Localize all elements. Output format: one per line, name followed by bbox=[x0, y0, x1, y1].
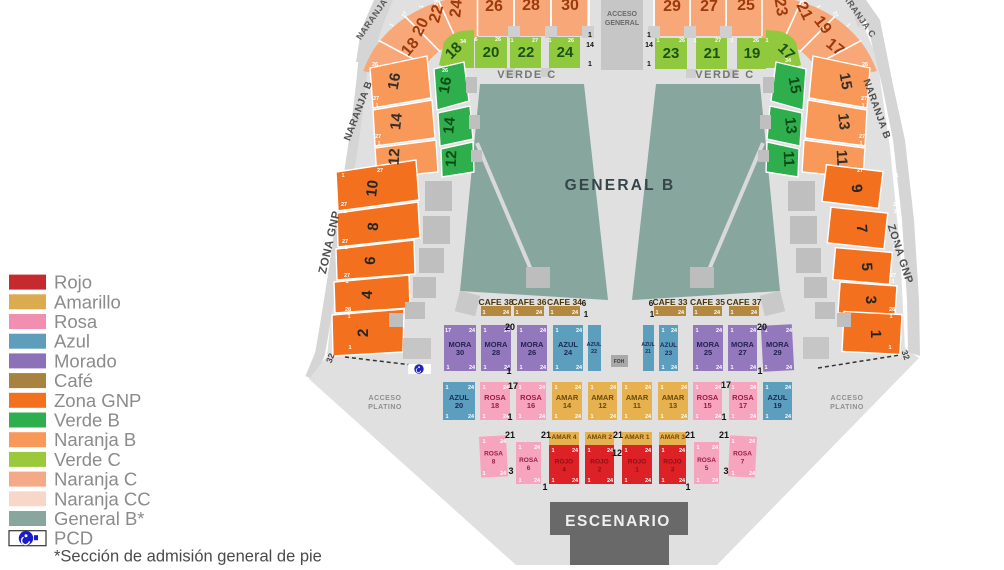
svg-text:1: 1 bbox=[693, 38, 696, 44]
svg-text:15: 15 bbox=[785, 76, 805, 95]
svg-text:34: 34 bbox=[460, 39, 467, 45]
svg-text:ROJO: ROJO bbox=[590, 459, 608, 466]
svg-text:24: 24 bbox=[645, 448, 652, 454]
svg-text:17: 17 bbox=[445, 328, 451, 334]
svg-text:1: 1 bbox=[889, 314, 892, 320]
svg-text:1: 1 bbox=[555, 328, 558, 334]
svg-text:24: 24 bbox=[610, 385, 617, 391]
svg-text:24: 24 bbox=[503, 310, 510, 316]
svg-text:6: 6 bbox=[362, 256, 380, 266]
svg-text:Verde B: Verde B bbox=[54, 410, 120, 431]
svg-text:1: 1 bbox=[590, 385, 593, 391]
svg-text:6: 6 bbox=[582, 299, 587, 308]
svg-text:ROSA: ROSA bbox=[484, 451, 503, 458]
svg-text:27: 27 bbox=[857, 168, 863, 174]
svg-text:24: 24 bbox=[749, 439, 756, 445]
svg-text:1: 1 bbox=[345, 279, 348, 285]
svg-text:1: 1 bbox=[518, 385, 521, 391]
svg-text:1: 1 bbox=[661, 478, 664, 484]
svg-text:1: 1 bbox=[892, 245, 895, 251]
svg-text:24: 24 bbox=[468, 385, 475, 391]
svg-text:27: 27 bbox=[377, 168, 383, 174]
svg-text:26: 26 bbox=[372, 62, 378, 68]
svg-text:24: 24 bbox=[540, 365, 547, 371]
svg-text:1: 1 bbox=[859, 141, 862, 147]
svg-text:14: 14 bbox=[387, 112, 406, 131]
svg-text:1: 1 bbox=[624, 448, 627, 454]
svg-text:Rojo: Rojo bbox=[54, 272, 92, 293]
svg-text:1: 1 bbox=[482, 385, 485, 391]
svg-text:1: 1 bbox=[555, 365, 558, 371]
svg-text:1: 1 bbox=[507, 412, 512, 422]
svg-text:ROJO: ROJO bbox=[628, 459, 646, 466]
svg-text:1: 1 bbox=[650, 310, 655, 319]
svg-text:27: 27 bbox=[700, 0, 718, 15]
svg-text:26: 26 bbox=[753, 38, 759, 44]
svg-text:24: 24 bbox=[572, 478, 579, 484]
svg-text:24: 24 bbox=[534, 478, 541, 484]
svg-text:21: 21 bbox=[505, 430, 515, 440]
svg-text:13: 13 bbox=[669, 401, 677, 410]
svg-text:24: 24 bbox=[572, 310, 579, 316]
svg-text:1: 1 bbox=[482, 310, 485, 316]
svg-text:1: 1 bbox=[731, 414, 734, 420]
svg-text:GENERAL: GENERAL bbox=[605, 20, 640, 27]
svg-text:14: 14 bbox=[563, 401, 572, 410]
svg-text:24: 24 bbox=[539, 414, 546, 420]
svg-text:1: 1 bbox=[696, 445, 699, 451]
svg-text:1: 1 bbox=[888, 345, 891, 351]
svg-text:1: 1 bbox=[518, 445, 521, 451]
svg-text:16: 16 bbox=[385, 72, 405, 91]
svg-text:24: 24 bbox=[750, 385, 757, 391]
svg-text:19: 19 bbox=[744, 45, 761, 62]
svg-text:Zona GNP: Zona GNP bbox=[54, 390, 141, 411]
svg-text:Morado: Morado bbox=[54, 350, 117, 371]
svg-text:24: 24 bbox=[576, 365, 583, 371]
svg-text:24: 24 bbox=[712, 445, 719, 451]
svg-text:3: 3 bbox=[862, 295, 879, 304]
svg-text:1: 1 bbox=[730, 38, 733, 44]
svg-text:25: 25 bbox=[704, 348, 712, 357]
svg-text:16: 16 bbox=[436, 76, 456, 95]
svg-text:PLATINO: PLATINO bbox=[368, 404, 402, 411]
svg-text:24: 24 bbox=[750, 365, 757, 371]
svg-text:1: 1 bbox=[518, 414, 521, 420]
svg-text:General B*: General B* bbox=[54, 508, 145, 529]
svg-text:24: 24 bbox=[678, 310, 685, 316]
svg-text:1: 1 bbox=[519, 328, 522, 334]
svg-text:3: 3 bbox=[723, 466, 728, 476]
svg-text:20: 20 bbox=[505, 322, 515, 332]
svg-text:5: 5 bbox=[858, 262, 876, 272]
svg-text:24: 24 bbox=[785, 414, 792, 420]
svg-text:26: 26 bbox=[862, 62, 868, 68]
svg-text:Naranja B: Naranja B bbox=[54, 429, 136, 450]
svg-text:1: 1 bbox=[765, 414, 768, 420]
svg-text:CAFE 33: CAFE 33 bbox=[653, 297, 688, 307]
svg-text:24: 24 bbox=[469, 365, 476, 371]
svg-text:1: 1 bbox=[730, 328, 733, 334]
svg-text:20: 20 bbox=[455, 401, 463, 410]
svg-text:1: 1 bbox=[765, 38, 768, 44]
svg-text:26: 26 bbox=[528, 348, 536, 357]
svg-text:27: 27 bbox=[738, 348, 746, 357]
svg-text:24: 24 bbox=[751, 310, 758, 316]
svg-text:7: 7 bbox=[741, 459, 745, 466]
svg-text:1: 1 bbox=[661, 365, 664, 371]
svg-text:21: 21 bbox=[719, 430, 729, 440]
svg-text:1: 1 bbox=[510, 38, 513, 44]
svg-text:26: 26 bbox=[442, 68, 448, 74]
svg-text:1: 1 bbox=[344, 245, 347, 251]
svg-text:1: 1 bbox=[656, 38, 659, 44]
svg-text:*Sección de admisión general d: *Sección de admisión general de pie bbox=[54, 548, 322, 566]
svg-text:FOH: FOH bbox=[614, 359, 625, 365]
svg-text:27: 27 bbox=[859, 134, 865, 140]
svg-text:1: 1 bbox=[660, 385, 663, 391]
svg-text:4: 4 bbox=[359, 290, 376, 300]
svg-text:1: 1 bbox=[861, 103, 864, 109]
svg-text:24: 24 bbox=[575, 385, 582, 391]
svg-text:24: 24 bbox=[572, 448, 579, 454]
svg-text:26: 26 bbox=[568, 38, 574, 44]
svg-text:1: 1 bbox=[730, 310, 733, 316]
svg-text:12: 12 bbox=[598, 401, 606, 410]
svg-text:29: 29 bbox=[663, 0, 681, 15]
svg-text:24: 24 bbox=[681, 385, 688, 391]
svg-text:1: 1 bbox=[548, 38, 551, 44]
svg-text:34: 34 bbox=[785, 58, 792, 64]
svg-text:Café: Café bbox=[54, 370, 93, 391]
svg-text:CAFE 38: CAFE 38 bbox=[479, 297, 514, 307]
svg-text:CAFE 35: CAFE 35 bbox=[690, 297, 725, 307]
svg-text:ROSA: ROSA bbox=[697, 457, 716, 464]
svg-text:10: 10 bbox=[363, 179, 382, 198]
svg-text:1: 1 bbox=[685, 482, 690, 492]
svg-text:24: 24 bbox=[750, 414, 757, 420]
svg-text:1: 1 bbox=[895, 173, 898, 179]
svg-text:16: 16 bbox=[527, 401, 535, 410]
svg-text:6: 6 bbox=[527, 465, 531, 472]
svg-text:ROJO: ROJO bbox=[555, 459, 573, 466]
svg-text:21: 21 bbox=[685, 430, 695, 440]
svg-text:AMAR 1: AMAR 1 bbox=[625, 434, 650, 441]
svg-text:1: 1 bbox=[482, 439, 485, 445]
svg-text:27: 27 bbox=[715, 38, 721, 44]
svg-text:1: 1 bbox=[867, 330, 884, 339]
svg-text:PLATINO: PLATINO bbox=[830, 404, 864, 411]
svg-text:1: 1 bbox=[757, 366, 762, 376]
svg-text:24: 24 bbox=[716, 328, 723, 334]
svg-text:1: 1 bbox=[731, 385, 734, 391]
svg-text:1: 1 bbox=[377, 141, 380, 147]
svg-text:30: 30 bbox=[561, 0, 579, 14]
svg-text:21: 21 bbox=[704, 45, 721, 62]
svg-text:26: 26 bbox=[679, 38, 685, 44]
svg-text:2: 2 bbox=[355, 329, 372, 338]
svg-text:1: 1 bbox=[624, 385, 627, 391]
svg-text:21: 21 bbox=[613, 430, 623, 440]
svg-text:1: 1 bbox=[587, 448, 590, 454]
svg-text:ACCESO: ACCESO bbox=[831, 395, 864, 402]
svg-text:30: 30 bbox=[456, 348, 464, 357]
svg-text:28: 28 bbox=[345, 307, 351, 313]
svg-text:CAFE 37: CAFE 37 bbox=[727, 297, 762, 307]
svg-text:24: 24 bbox=[712, 478, 719, 484]
svg-text:24: 24 bbox=[786, 365, 793, 371]
svg-text:23: 23 bbox=[665, 350, 673, 357]
svg-text:24: 24 bbox=[714, 310, 721, 316]
svg-text:24: 24 bbox=[610, 414, 617, 420]
svg-text:17: 17 bbox=[739, 401, 747, 410]
svg-text:17: 17 bbox=[508, 381, 518, 391]
svg-text:1: 1 bbox=[635, 467, 639, 474]
svg-text:1: 1 bbox=[721, 412, 726, 422]
svg-text:5: 5 bbox=[705, 465, 709, 472]
svg-text:3: 3 bbox=[671, 467, 675, 474]
svg-text:VERDE C: VERDE C bbox=[695, 69, 754, 81]
svg-text:Verde C: Verde C bbox=[54, 449, 121, 470]
svg-text:ACCESO: ACCESO bbox=[369, 395, 402, 402]
svg-text:24: 24 bbox=[607, 478, 614, 484]
svg-text:21: 21 bbox=[541, 430, 551, 440]
svg-text:ROJO: ROJO bbox=[663, 459, 681, 466]
svg-text:24: 24 bbox=[716, 365, 723, 371]
svg-text:1: 1 bbox=[590, 414, 593, 420]
svg-text:1: 1 bbox=[341, 173, 344, 179]
svg-text:11: 11 bbox=[633, 401, 641, 410]
svg-text:1: 1 bbox=[375, 103, 378, 109]
svg-text:1: 1 bbox=[551, 478, 554, 484]
svg-text:24: 24 bbox=[749, 471, 756, 477]
svg-text:1: 1 bbox=[482, 471, 485, 477]
svg-text:1: 1 bbox=[661, 328, 664, 334]
svg-text:7: 7 bbox=[853, 224, 871, 234]
svg-text:28: 28 bbox=[889, 307, 895, 313]
svg-text:29: 29 bbox=[773, 348, 781, 357]
svg-text:1: 1 bbox=[551, 448, 554, 454]
svg-text:1: 1 bbox=[587, 478, 590, 484]
svg-text:27: 27 bbox=[893, 202, 899, 208]
svg-text:1: 1 bbox=[445, 414, 448, 420]
svg-text:1: 1 bbox=[584, 310, 589, 319]
svg-text:14: 14 bbox=[440, 116, 459, 135]
svg-text:1: 1 bbox=[695, 385, 698, 391]
svg-text:AZUL: AZUL bbox=[660, 342, 677, 349]
svg-text:AMAR 2: AMAR 2 bbox=[587, 434, 612, 441]
svg-text:24: 24 bbox=[539, 385, 546, 391]
svg-text:24: 24 bbox=[536, 310, 543, 316]
svg-text:25: 25 bbox=[737, 0, 755, 14]
svg-text:1: 1 bbox=[695, 328, 698, 334]
svg-text:27: 27 bbox=[532, 38, 538, 44]
svg-text:26: 26 bbox=[495, 37, 501, 43]
svg-text:1: 1 bbox=[515, 310, 518, 316]
svg-text:AMAR 4: AMAR 4 bbox=[552, 434, 577, 441]
svg-text:1: 1 bbox=[731, 439, 734, 445]
svg-text:CAFE 36: CAFE 36 bbox=[512, 297, 547, 307]
svg-text:6: 6 bbox=[474, 37, 477, 43]
svg-text:Azul: Azul bbox=[54, 331, 90, 352]
svg-text:Rosa: Rosa bbox=[54, 311, 98, 332]
svg-text:1: 1 bbox=[764, 365, 767, 371]
svg-text:20: 20 bbox=[757, 322, 767, 332]
svg-text:Amarillo: Amarillo bbox=[54, 291, 121, 312]
svg-text:24: 24 bbox=[786, 328, 793, 334]
svg-text:1: 1 bbox=[661, 448, 664, 454]
svg-text:24: 24 bbox=[679, 448, 686, 454]
svg-text:1: 1 bbox=[550, 310, 553, 316]
svg-text:12: 12 bbox=[386, 148, 404, 166]
svg-text:GENERAL B: GENERAL B bbox=[565, 177, 676, 194]
svg-text:8: 8 bbox=[492, 459, 496, 466]
svg-text:14: 14 bbox=[586, 42, 594, 49]
svg-text:20: 20 bbox=[483, 44, 500, 61]
svg-text:1: 1 bbox=[730, 365, 733, 371]
svg-text:CAFE 34: CAFE 34 bbox=[547, 297, 582, 307]
svg-text:11: 11 bbox=[833, 149, 851, 166]
svg-text:1: 1 bbox=[554, 414, 557, 420]
svg-text:24: 24 bbox=[645, 414, 652, 420]
svg-text:1: 1 bbox=[695, 414, 698, 420]
svg-text:24: 24 bbox=[469, 328, 476, 334]
svg-text:24: 24 bbox=[785, 385, 792, 391]
svg-text:24: 24 bbox=[645, 478, 652, 484]
svg-text:6: 6 bbox=[649, 299, 654, 308]
svg-text:26: 26 bbox=[485, 0, 503, 15]
svg-text:1: 1 bbox=[696, 478, 699, 484]
svg-text:1: 1 bbox=[588, 61, 592, 68]
svg-text:24: 24 bbox=[576, 328, 583, 334]
svg-text:15: 15 bbox=[703, 401, 711, 410]
svg-text:8: 8 bbox=[365, 222, 383, 232]
svg-text:24: 24 bbox=[447, 0, 466, 18]
svg-text:1: 1 bbox=[518, 478, 521, 484]
svg-text:1: 1 bbox=[891, 279, 894, 285]
svg-text:22: 22 bbox=[591, 349, 597, 355]
svg-text:22: 22 bbox=[518, 44, 535, 61]
svg-text:AZUL: AZUL bbox=[587, 342, 602, 348]
svg-text:1: 1 bbox=[446, 365, 449, 371]
svg-text:ROSA: ROSA bbox=[733, 451, 752, 458]
svg-text:15: 15 bbox=[836, 72, 856, 91]
svg-text:1: 1 bbox=[695, 365, 698, 371]
svg-text:1: 1 bbox=[445, 385, 448, 391]
svg-text:23: 23 bbox=[663, 45, 680, 62]
svg-text:1: 1 bbox=[483, 365, 486, 371]
svg-text:19: 19 bbox=[773, 401, 781, 410]
svg-text:24: 24 bbox=[671, 365, 678, 371]
svg-text:1: 1 bbox=[694, 310, 697, 316]
svg-text:24: 24 bbox=[671, 328, 678, 334]
svg-text:Naranja CC: Naranja CC bbox=[54, 488, 151, 509]
svg-text:1: 1 bbox=[588, 32, 592, 39]
svg-text:1: 1 bbox=[343, 209, 346, 215]
svg-text:17: 17 bbox=[721, 380, 731, 390]
svg-text:24: 24 bbox=[540, 328, 547, 334]
svg-text:1: 1 bbox=[554, 385, 557, 391]
svg-text:1: 1 bbox=[483, 328, 486, 334]
svg-text:4: 4 bbox=[562, 467, 566, 474]
svg-text:12: 12 bbox=[443, 150, 461, 168]
svg-text:24: 24 bbox=[557, 44, 574, 61]
svg-text:1: 1 bbox=[482, 414, 485, 420]
svg-text:24: 24 bbox=[645, 385, 652, 391]
svg-text:28: 28 bbox=[522, 0, 540, 14]
svg-text:AZUL: AZUL bbox=[641, 342, 654, 348]
svg-text:1: 1 bbox=[731, 471, 734, 477]
svg-text:2: 2 bbox=[598, 467, 602, 474]
svg-text:27: 27 bbox=[341, 202, 347, 208]
svg-text:1: 1 bbox=[506, 366, 511, 376]
svg-text:24: 24 bbox=[564, 348, 573, 357]
svg-text:ESCENARIO: ESCENARIO bbox=[565, 513, 671, 530]
svg-text:24: 24 bbox=[500, 471, 507, 477]
svg-text:24: 24 bbox=[681, 414, 688, 420]
svg-text:27: 27 bbox=[373, 96, 379, 102]
svg-text:AMAR 3: AMAR 3 bbox=[660, 434, 685, 441]
svg-text:24: 24 bbox=[750, 328, 757, 334]
svg-text:1: 1 bbox=[893, 209, 896, 215]
svg-text:1: 1 bbox=[765, 385, 768, 391]
svg-text:24: 24 bbox=[468, 414, 475, 420]
svg-text:1: 1 bbox=[542, 482, 547, 492]
svg-text:3: 3 bbox=[508, 466, 513, 476]
svg-text:1: 1 bbox=[660, 414, 663, 420]
svg-text:1: 1 bbox=[347, 314, 350, 320]
svg-text:24: 24 bbox=[534, 445, 541, 451]
svg-text:21: 21 bbox=[645, 349, 651, 355]
svg-text:ROSA: ROSA bbox=[519, 457, 538, 464]
svg-text:28: 28 bbox=[492, 348, 500, 357]
svg-text:24: 24 bbox=[575, 414, 582, 420]
svg-text:13: 13 bbox=[834, 112, 853, 130]
svg-text:27: 27 bbox=[375, 134, 381, 140]
svg-text:1: 1 bbox=[348, 345, 351, 351]
svg-text:VERDE C: VERDE C bbox=[497, 69, 556, 81]
svg-text:13: 13 bbox=[781, 116, 800, 134]
svg-text:1: 1 bbox=[624, 414, 627, 420]
svg-text:12: 12 bbox=[612, 448, 622, 458]
svg-text:1: 1 bbox=[655, 310, 658, 316]
svg-text:23: 23 bbox=[771, 0, 791, 18]
svg-text:ACCESO: ACCESO bbox=[607, 11, 638, 18]
svg-text:1: 1 bbox=[647, 32, 651, 39]
svg-text:27: 27 bbox=[861, 96, 867, 102]
svg-text:14: 14 bbox=[645, 42, 653, 49]
svg-text:11: 11 bbox=[780, 150, 798, 167]
svg-text:PCD: PCD bbox=[54, 528, 93, 549]
svg-text:Naranja C: Naranja C bbox=[54, 469, 137, 490]
svg-text:1: 1 bbox=[519, 365, 522, 371]
svg-text:1: 1 bbox=[624, 478, 627, 484]
svg-text:1: 1 bbox=[647, 61, 651, 68]
svg-text:18: 18 bbox=[491, 401, 499, 410]
